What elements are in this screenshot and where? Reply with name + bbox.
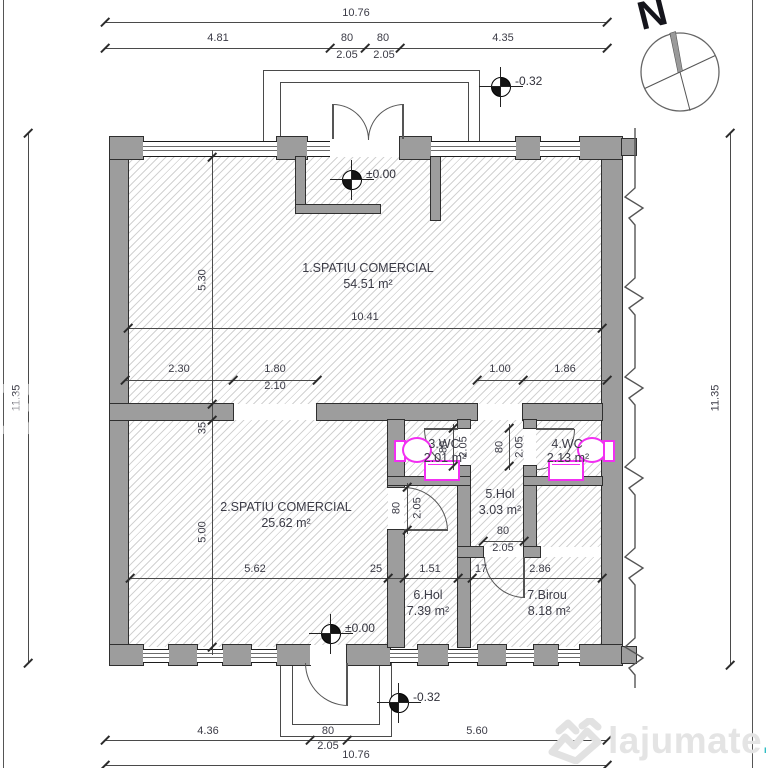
wall-hall-left-stub bbox=[458, 420, 470, 428]
dim-low-4: 17 bbox=[475, 564, 487, 576]
level-minus-top: -0.32 bbox=[515, 74, 542, 88]
watermark-ghost: lajumate bbox=[0, 348, 63, 457]
wall-bottom-pier5 bbox=[418, 645, 448, 665]
dim-room1-height: 5.30 bbox=[198, 269, 209, 290]
dim-top-door1: 80 bbox=[341, 33, 353, 45]
dim-hol6-door-h: 2.05 bbox=[413, 497, 424, 518]
dim-line-bottom-row bbox=[105, 740, 607, 741]
level-zero-top: ±0.00 bbox=[366, 167, 396, 181]
dim-bottom-right: 5.60 bbox=[466, 726, 487, 738]
bottom-door-opening bbox=[310, 645, 347, 665]
wall-middle-seg2 bbox=[317, 404, 477, 420]
wall-middle-seg3 bbox=[523, 404, 602, 420]
dim-line-bottom-total bbox=[105, 765, 607, 766]
dim-mid-2: 1.80 bbox=[264, 364, 285, 376]
window-bottom-7 bbox=[558, 649, 580, 663]
level-marker-icon bbox=[342, 170, 362, 190]
dim-bottom-total: 10.76 bbox=[342, 750, 370, 762]
level-marker-icon bbox=[491, 77, 511, 97]
top-door-opening bbox=[330, 137, 400, 157]
dim-mid-3: 1.00 bbox=[489, 364, 510, 376]
dim-line-mid-right bbox=[477, 380, 607, 381]
dim-bottom-sub: 2.05 bbox=[317, 741, 338, 753]
wall-right bbox=[602, 137, 622, 663]
room1-area: 54.51 m² bbox=[343, 277, 392, 291]
dim-top-right: 4.35 bbox=[492, 33, 513, 45]
dim-line-right bbox=[730, 133, 731, 665]
birou-area: 8.18 m² bbox=[528, 604, 570, 618]
level-marker-icon bbox=[389, 693, 409, 713]
wall-birou-top-left bbox=[458, 547, 483, 557]
watermark: lajumate.ro bbox=[546, 718, 766, 764]
bottom-door-leaf bbox=[346, 663, 348, 705]
hall-bottom-door-leaf bbox=[523, 557, 525, 597]
dim-mid-2b: 2.10 bbox=[264, 381, 285, 393]
room1-label: 1.SPATIU COMERCIAL bbox=[302, 261, 434, 275]
dim-line-mid-left bbox=[125, 380, 317, 381]
window-bottom-5 bbox=[448, 649, 478, 663]
window-top-1 bbox=[143, 141, 277, 157]
watermark-logo-icon bbox=[546, 718, 604, 764]
wc4-label: 4.WC bbox=[551, 437, 582, 451]
watermark-tld: .ro bbox=[762, 720, 766, 762]
wc4-door-leaf bbox=[536, 428, 574, 430]
dim-low-3: 1.51 bbox=[419, 564, 440, 576]
room2-floor bbox=[128, 420, 388, 647]
wall-birou-top-right bbox=[524, 547, 540, 557]
dim-hall-door-w: 80 bbox=[497, 526, 509, 538]
dim-hol6-door-w: 80 bbox=[392, 502, 403, 514]
wc3-label: 3.WC bbox=[428, 437, 459, 451]
wc4-area: 2.13 m² bbox=[547, 451, 589, 465]
window-bottom-4 bbox=[390, 649, 418, 663]
wc3-area: 2.01 m² bbox=[424, 451, 466, 465]
wall-vestibule-right bbox=[431, 157, 440, 220]
birou-label: 7.Birou bbox=[527, 588, 567, 602]
dim-top-sub2: 2.05 bbox=[373, 50, 394, 62]
dim-line-lower bbox=[130, 578, 602, 579]
wall-vestibule-left-h bbox=[296, 205, 380, 213]
window-bottom-3 bbox=[251, 649, 277, 663]
dim-top-sub1: 2.05 bbox=[336, 50, 357, 62]
hol6-label: 6.Hol bbox=[413, 588, 442, 602]
dim-line-room1-width bbox=[128, 328, 602, 329]
top-door-left-leaf bbox=[332, 104, 334, 139]
level-minus-bottom: -0.32 bbox=[413, 690, 440, 704]
dim-bottom-door: 80 bbox=[322, 726, 334, 738]
floor-plan-canvas: 10.76 4.81 80 80 4.35 2.05 2.05 11.35 11… bbox=[0, 0, 766, 768]
dim-low-5: 2.86 bbox=[529, 564, 550, 576]
birou-upper-floor bbox=[536, 485, 602, 547]
room2-area: 25.62 m² bbox=[261, 516, 310, 530]
wall-hall-right-stub bbox=[524, 420, 536, 428]
wall-bottom-corner-left bbox=[110, 645, 143, 665]
dim-top-door2: 80 bbox=[377, 33, 389, 45]
dim-wc4-door-h: 2.05 bbox=[515, 436, 526, 457]
window-top-2 bbox=[307, 141, 330, 157]
wall-top-pier4 bbox=[516, 137, 540, 159]
window-bottom-2 bbox=[197, 649, 223, 663]
level-marker-icon bbox=[321, 624, 341, 644]
dim-top-left: 4.81 bbox=[207, 33, 228, 45]
window-bottom-6 bbox=[506, 649, 534, 663]
break-line-right bbox=[624, 128, 648, 688]
wall-bottom-pier6 bbox=[478, 645, 506, 665]
dim-hall-door-h: 2.05 bbox=[492, 543, 513, 555]
dim-line-top-total bbox=[105, 22, 607, 23]
dim-room1-width: 10.41 bbox=[351, 312, 379, 324]
dim-wc4-door-w: 80 bbox=[495, 441, 506, 453]
wc4-toilet-tank-icon bbox=[603, 440, 615, 462]
dim-low-1: 5.62 bbox=[244, 564, 265, 576]
dim-top-total: 10.76 bbox=[342, 8, 370, 20]
room2-label: 2.SPATIU COMERCIAL bbox=[220, 500, 352, 514]
window-bottom-1 bbox=[143, 649, 169, 663]
dim-low-2: 25 bbox=[370, 564, 382, 576]
dim-mid-1: 2.30 bbox=[168, 364, 189, 376]
wall-top-corner bbox=[580, 137, 622, 159]
watermark-name: lajumate bbox=[608, 720, 762, 762]
wall-bottom-pier3 bbox=[277, 645, 310, 665]
dim-mid-4: 1.86 bbox=[554, 364, 575, 376]
wall-bottom-pier4 bbox=[347, 645, 390, 665]
window-top-3 bbox=[431, 141, 516, 157]
wall-a-lower bbox=[388, 530, 404, 647]
hol6-area: 7.39 m² bbox=[407, 604, 449, 618]
wall-bottom-pier7 bbox=[534, 645, 558, 665]
level-zero-bottom: ±0.00 bbox=[345, 621, 375, 635]
wall-bottom-corner-right bbox=[580, 645, 622, 665]
top-door-right-leaf bbox=[402, 104, 404, 139]
hol6-door-leaf bbox=[404, 529, 447, 531]
hall5-label: 5.Hol bbox=[485, 487, 514, 501]
wall-top-pier3 bbox=[400, 137, 431, 159]
dim-wall-thickness: 35 bbox=[198, 422, 209, 434]
compass-icon bbox=[634, 24, 729, 119]
wall-bottom-pier2 bbox=[223, 645, 251, 665]
window-top-4 bbox=[540, 141, 580, 157]
wall-top-pier2 bbox=[277, 137, 307, 159]
wall-left bbox=[110, 137, 128, 663]
wall-vestibule-left-v bbox=[296, 157, 305, 212]
wall-top-pier1 bbox=[110, 137, 143, 159]
sheet-border-right bbox=[752, 0, 753, 768]
dim-bottom-left: 4.36 bbox=[197, 726, 218, 738]
wall-bottom-pier1 bbox=[169, 645, 197, 665]
dim-room2-height: 5.00 bbox=[198, 521, 209, 542]
dim-side-right: 11.35 bbox=[711, 385, 722, 412]
hall5-area: 3.03 m² bbox=[479, 503, 521, 517]
